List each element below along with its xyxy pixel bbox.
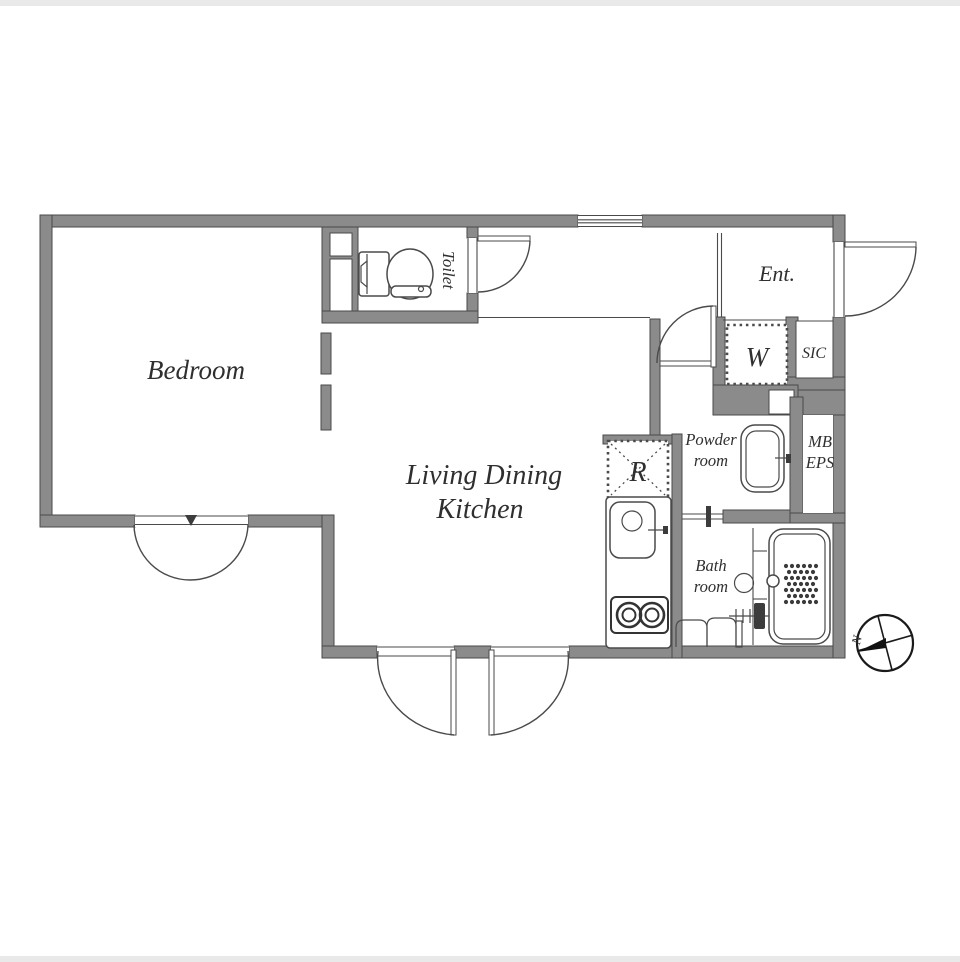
eps-label: EPS — [805, 453, 834, 472]
room-labels: Bedroom Living Dining Kitchen Toilet Ent… — [147, 251, 834, 596]
compass: N — [848, 615, 913, 671]
ldk-label-line2: Kitchen — [435, 494, 523, 525]
ldk-balcony-doors — [378, 650, 569, 735]
floor-lines — [478, 233, 786, 320]
sic-label: SIC — [802, 345, 826, 362]
openings — [135, 215, 845, 658]
powder-room-label-line2: room — [694, 451, 728, 470]
bedroom-label: Bedroom — [147, 355, 245, 385]
kitchen-unit — [606, 497, 671, 648]
bathroom-label-line2: room — [694, 577, 728, 596]
entrance-doorway — [833, 242, 845, 317]
bath-counter — [676, 618, 742, 647]
stove — [611, 597, 668, 633]
floor-plan-page: N Bedroom Living Dining Kitchen Toilet E… — [0, 0, 960, 962]
bathroom-label-line1: Bath — [695, 556, 726, 575]
toilet-door — [478, 236, 530, 292]
entrance-door — [845, 242, 916, 316]
powder-room-label-line1: Powder — [684, 430, 737, 449]
powder-doorway — [660, 361, 713, 366]
refrigerator-space-label: R — [628, 457, 646, 488]
floor-plan-drawing: N Bedroom Living Dining Kitchen Toilet E… — [0, 0, 960, 962]
toilet-fixture — [359, 249, 433, 299]
toilet-label: Toilet — [439, 251, 458, 290]
mb-label: MB — [807, 432, 832, 451]
bath-drain — [735, 574, 754, 593]
bathtub-handle — [767, 575, 779, 587]
entrance-label: Ent. — [758, 261, 795, 286]
window-top — [578, 215, 642, 227]
powder-room-door — [657, 306, 716, 367]
bathtub — [767, 529, 830, 644]
washer-space-label: W — [746, 342, 771, 372]
bathtub-antislip-dots — [784, 564, 818, 604]
powder-basin — [741, 425, 791, 492]
ldk-label-line1: Living Dining — [405, 460, 562, 491]
toilet-doorway — [467, 238, 478, 293]
bath-doorway — [682, 506, 723, 527]
